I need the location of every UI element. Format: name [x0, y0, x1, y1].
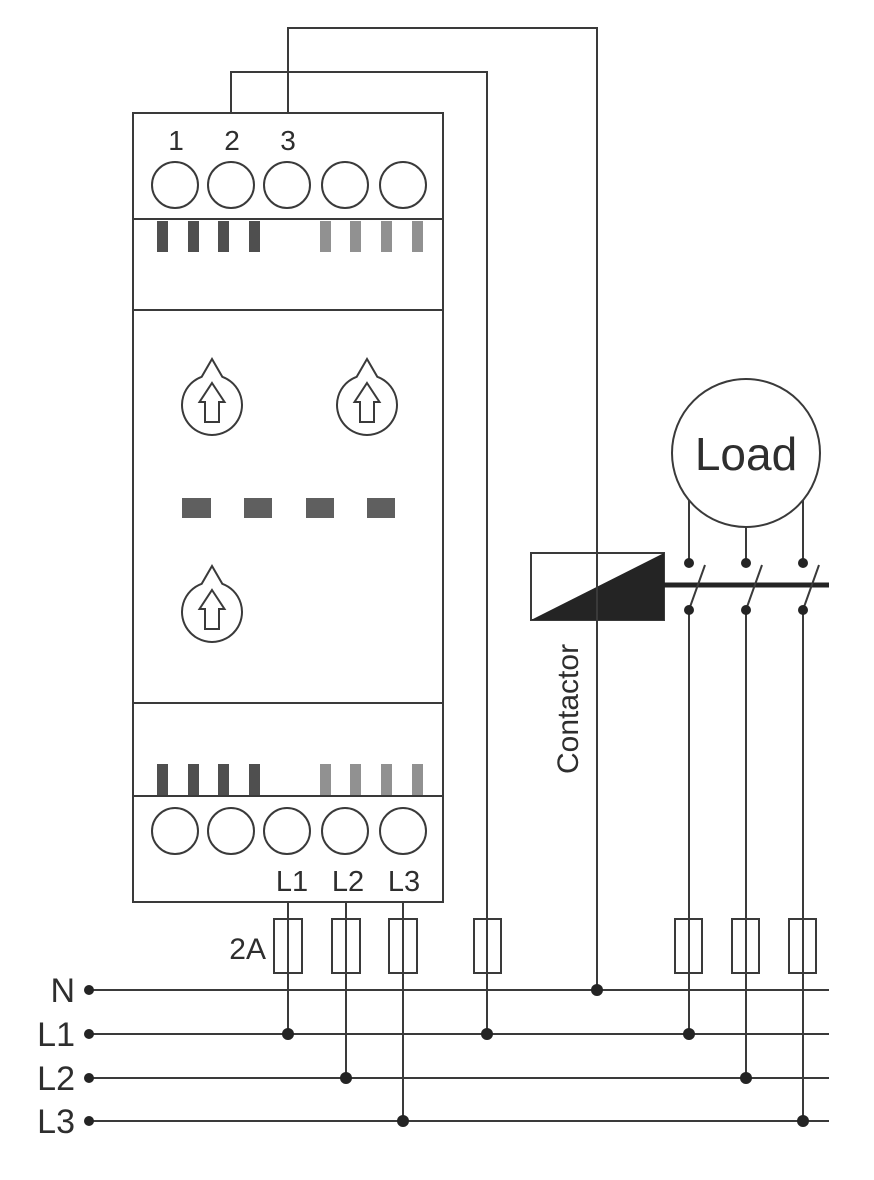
bus-start-dot-l1 [84, 1029, 94, 1039]
contactor-symbol [531, 553, 829, 620]
bus-label-l1: L1 [37, 1016, 75, 1054]
junction-dots [282, 984, 809, 1127]
bus-label-l3: L3 [37, 1103, 75, 1141]
bottom-terminal-l2 [322, 808, 368, 854]
bottom-terminal-1 [152, 808, 198, 854]
contactor-label: Contactor [552, 644, 585, 774]
top-terminal-label-3: 3 [280, 125, 296, 156]
relay-device-body [133, 113, 443, 902]
wiring-diagram: 1 2 3 [0, 0, 874, 1180]
bus-label-n: N [50, 972, 75, 1010]
fuse-rating-label: 2A [229, 933, 266, 966]
top-terminal-5 [380, 162, 426, 208]
bus-start-dot-l2 [84, 1073, 94, 1083]
bottom-terminal-l3 [380, 808, 426, 854]
top-terminal-label-1: 1 [168, 125, 184, 156]
top-terminal-2 [208, 162, 254, 208]
top-terminal-4 [322, 162, 368, 208]
load-label: Load [695, 428, 797, 480]
bottom-terminal-2 [208, 808, 254, 854]
bottom-terminal-label-l3: L3 [388, 866, 420, 898]
bottom-terminal-label-l2: L2 [332, 866, 364, 898]
bus-start-dot-n [84, 985, 94, 995]
bus-label-l2: L2 [37, 1060, 75, 1098]
bus-start-dot-l3 [84, 1116, 94, 1126]
top-terminal-label-2: 2 [224, 125, 240, 156]
wiring-diagram-canvas: 1 2 3 [0, 0, 874, 1180]
bottom-terminal-label-l1: L1 [276, 866, 308, 898]
fuse-group [274, 919, 816, 973]
top-terminal-3 [264, 162, 310, 208]
bottom-terminal-l1 [264, 808, 310, 854]
bus-lines [84, 985, 829, 1126]
top-terminal-1 [152, 162, 198, 208]
